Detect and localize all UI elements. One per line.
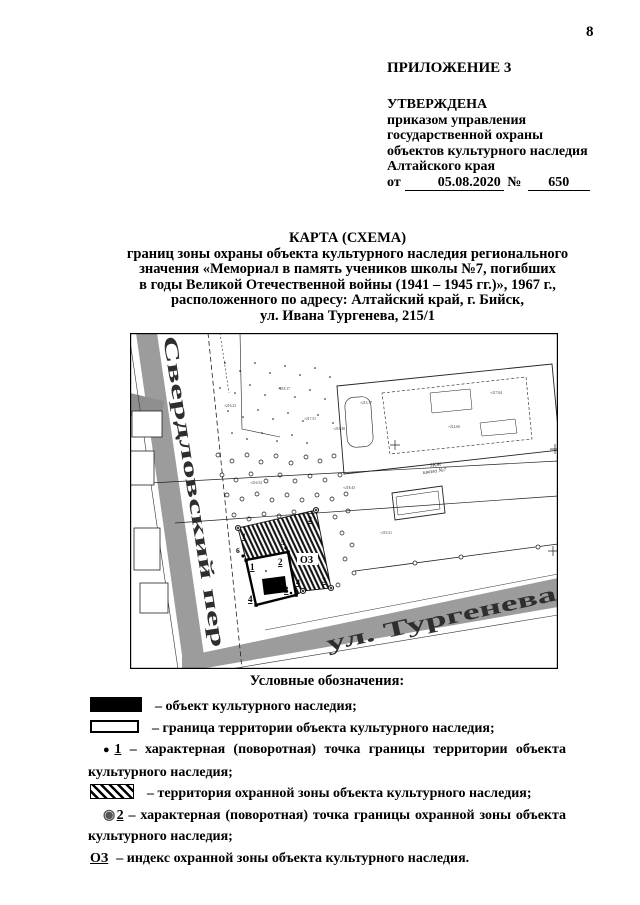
approval-date: 05.08.2020	[405, 176, 504, 191]
legend-swatch-zone-hatch	[90, 784, 134, 799]
territory-point-num: 1	[114, 742, 121, 757]
legend-heading: Условные обозначения:	[88, 671, 566, 692]
svg-text:+218.48: +218.48	[333, 427, 345, 431]
zone-point-num: 2	[117, 808, 124, 823]
legend-swatch-object	[90, 697, 142, 712]
zone-point-label-4: 4	[296, 578, 300, 587]
legend-item-zone-area: – территория охранной зоны объекта культ…	[88, 783, 566, 805]
zone-index-label: ОЗ	[300, 555, 313, 566]
legend-item-zone-point: ◉2 – характерная (поворотная) точка гран…	[88, 805, 566, 827]
svg-text:+213.17: +213.17	[360, 401, 372, 405]
approval-number: 650	[528, 176, 590, 191]
map-title: КАРТА (СХЕМА)	[90, 231, 605, 247]
legend: Условные обозначения: – объект культурно…	[88, 671, 566, 869]
ground-dots	[219, 362, 334, 444]
approval-body: приказом управления государственной охра…	[387, 113, 590, 175]
document-page: 8 ПРИЛОЖЕНИЕ 3 УТВЕРЖДЕНА приказом управ…	[0, 0, 640, 905]
legend-zone-index-text: – индекс охранной зоны объекта культурно…	[116, 851, 469, 866]
svg-text:+218.17: +218.17	[278, 387, 290, 391]
territory-point-label-2: 2	[278, 557, 283, 567]
territory-dot	[265, 570, 267, 572]
legend-territory-border-text: – граница территории объекта культурного…	[152, 721, 495, 736]
object-dot	[290, 592, 293, 595]
territory-point-dot-icon: ●	[103, 744, 114, 756]
page-number: 8	[586, 24, 594, 41]
legend-zone-point-text-2: культурного наследия;	[88, 826, 566, 848]
approved-label: УТВЕРЖДЕНА	[387, 97, 590, 113]
approval-block: УТВЕРЖДЕНА приказом управления государст…	[387, 97, 590, 191]
legend-territory-point-text: – характерная (поворотная) точка границы…	[130, 742, 566, 757]
zone-point-circle-icon: ◉	[103, 808, 117, 823]
street-label-turgeneva: ул. Тургенева	[324, 581, 558, 656]
edge-point-label-6: 6	[236, 546, 240, 555]
map-subtitle: границ зоны охраны объекта культурного н…	[90, 247, 605, 325]
zone-point-label-3: 3	[322, 576, 326, 585]
svg-text:+214.60: +214.60	[448, 425, 460, 429]
legend-zone-point-text: – характерная (поворотная) точка границы…	[128, 808, 566, 823]
site-map-svg: 1 2 3 4 5 6 1 2 3 4 ОЗ 3КЖ школа №7 +218…	[130, 333, 558, 669]
legend-swatch-territory-border	[90, 720, 139, 733]
legend-item-territory-point: ●1 – характерная (поворотная) точка гран…	[88, 739, 566, 762]
zone-point-label-1: 1	[242, 532, 246, 541]
legend-item-object: – объект культурного наследия;	[88, 696, 566, 718]
school-buildings	[337, 364, 558, 520]
zone-index-symbol: ОЗ	[88, 851, 108, 866]
svg-text:+216.23: +216.23	[224, 404, 236, 408]
site-map: 1 2 3 4 5 6 1 2 3 4 ОЗ 3КЖ школа №7 +218…	[130, 333, 558, 669]
svg-text:+217.51: +217.51	[304, 417, 316, 421]
legend-object-text: – объект культурного наследия;	[155, 699, 357, 714]
territory-point-label-4: 4	[248, 594, 253, 604]
zone-point-label-2: 2	[308, 515, 312, 524]
title-block: КАРТА (СХЕМА) границ зоны охраны объекта…	[90, 231, 605, 325]
svg-text:+218.43: +218.43	[343, 486, 355, 490]
approval-date-line: от05.08.2020 № 650	[387, 175, 590, 191]
svg-text:+216.54: +216.54	[250, 481, 262, 485]
svg-text:+219.21: +219.21	[380, 531, 392, 535]
legend-territory-point-text-2: культурного наследия;	[88, 762, 566, 784]
territory-point-label-1: 1	[250, 562, 255, 572]
fence-line	[355, 544, 558, 571]
svg-text:+217.84: +217.84	[490, 391, 502, 395]
territory-point-label-3: 3	[284, 585, 289, 595]
edge-point-label-5: 5	[281, 538, 285, 547]
from-label: от	[387, 175, 401, 190]
appendix-label: ПРИЛОЖЕНИЕ 3	[387, 60, 511, 77]
legend-item-territory-border: – граница территории объекта культурного…	[88, 718, 566, 740]
legend-item-zone-index: ОЗ– индекс охранной зоны объекта культур…	[88, 848, 566, 870]
number-sign: №	[507, 175, 521, 190]
legend-zone-area-text: – территория охранной зоны объекта культ…	[147, 786, 532, 801]
